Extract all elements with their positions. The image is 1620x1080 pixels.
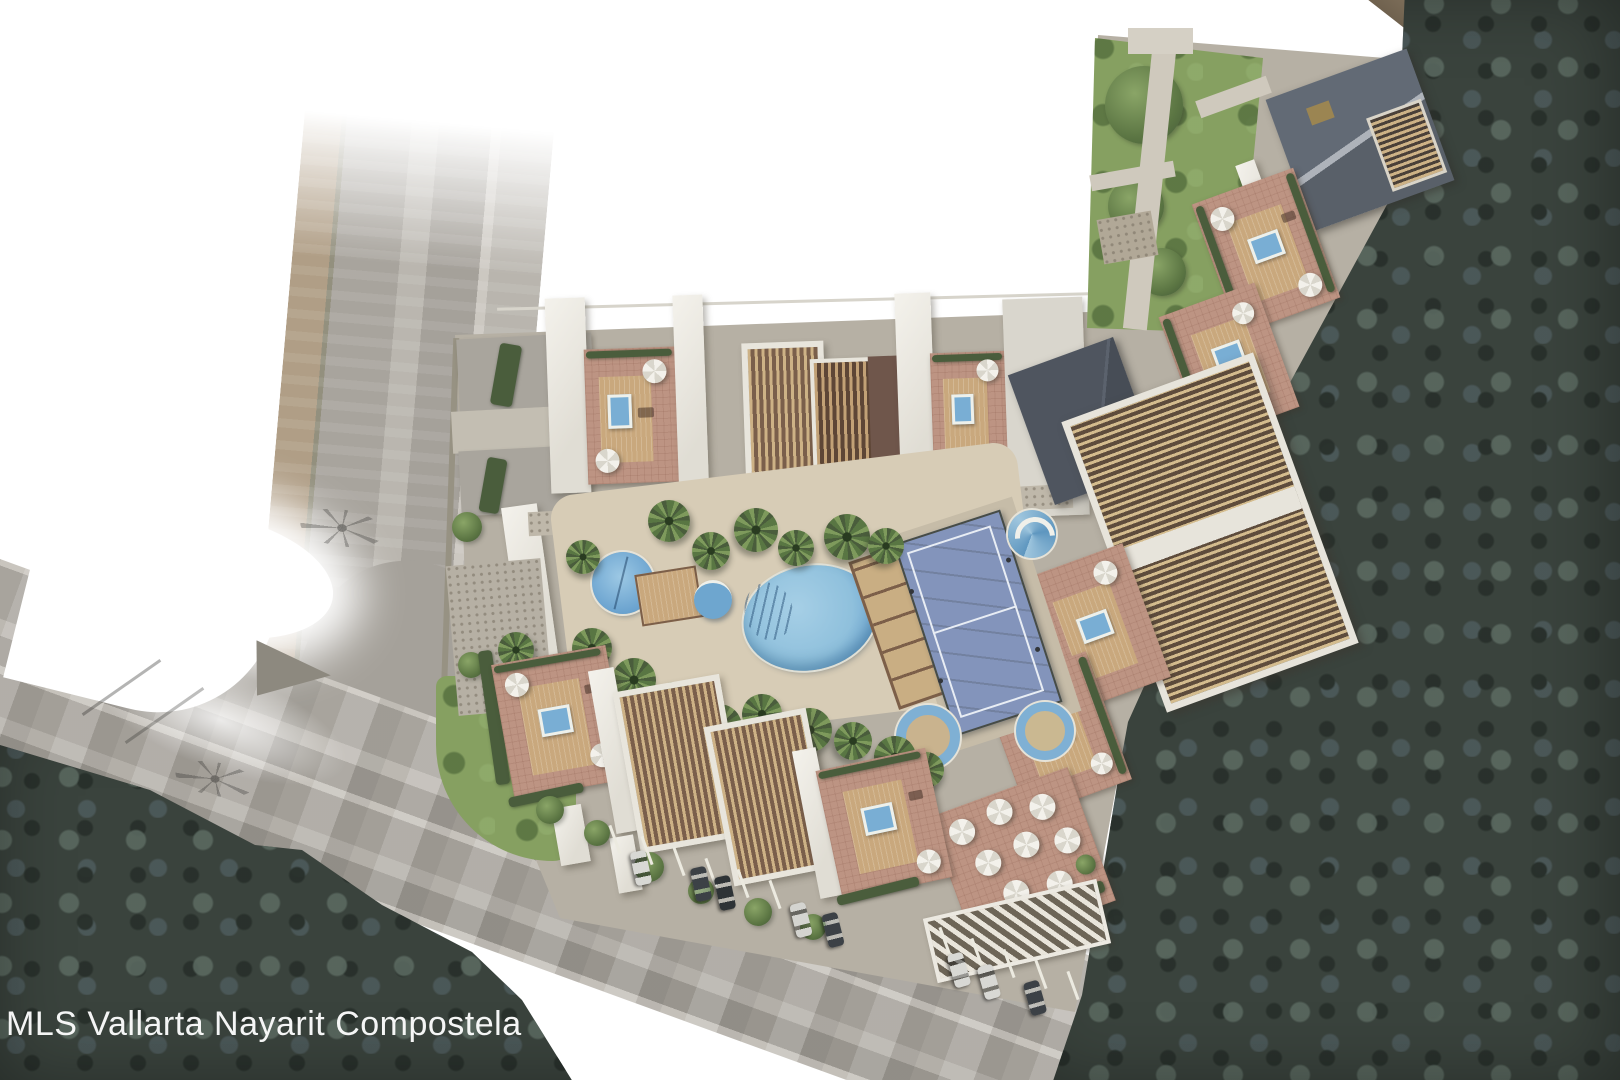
white-roofline [497, 292, 1089, 310]
stone-patch [1097, 211, 1159, 265]
sun-umbrella [642, 359, 667, 384]
plunge-pool [607, 394, 632, 429]
sun-umbrella [983, 795, 1016, 828]
net-post [1034, 646, 1040, 652]
plunge-pool [538, 704, 574, 737]
sun-umbrella [972, 846, 1005, 879]
sun-umbrella [915, 847, 943, 875]
net-post [937, 678, 943, 684]
net-post [1005, 557, 1011, 563]
sun-umbrella [595, 448, 620, 473]
shrub [1073, 852, 1099, 878]
sun-umbrella [976, 359, 999, 382]
plunge-pool [951, 394, 974, 425]
shrub [744, 898, 772, 926]
watermark-text: MLS Vallarta Nayarit Compostela [6, 1005, 522, 1044]
sun-umbrella [1051, 824, 1084, 857]
spiral-spa [1008, 510, 1056, 558]
rooftop-terrace [584, 346, 681, 484]
terrace-hedge [586, 349, 672, 359]
garden-pad [1128, 28, 1193, 54]
net-post [908, 588, 914, 594]
sun-umbrella [1010, 828, 1043, 861]
aerial-site-plan: MLS Vallarta Nayarit Compostela [0, 0, 1620, 1080]
shrub [536, 796, 564, 824]
terrace-furniture [908, 789, 924, 801]
sun-umbrella [1026, 790, 1059, 823]
skylight [1306, 100, 1335, 125]
jacuzzi-ring [1016, 702, 1074, 760]
shrub [584, 820, 610, 846]
lap-line [613, 557, 628, 610]
terrace-furniture [638, 407, 654, 418]
entry-tree [452, 512, 482, 542]
sun-umbrella [945, 815, 978, 848]
sun-umbrella [1090, 557, 1121, 588]
kids-spa-pool [694, 580, 732, 619]
palm-tree [648, 500, 690, 542]
